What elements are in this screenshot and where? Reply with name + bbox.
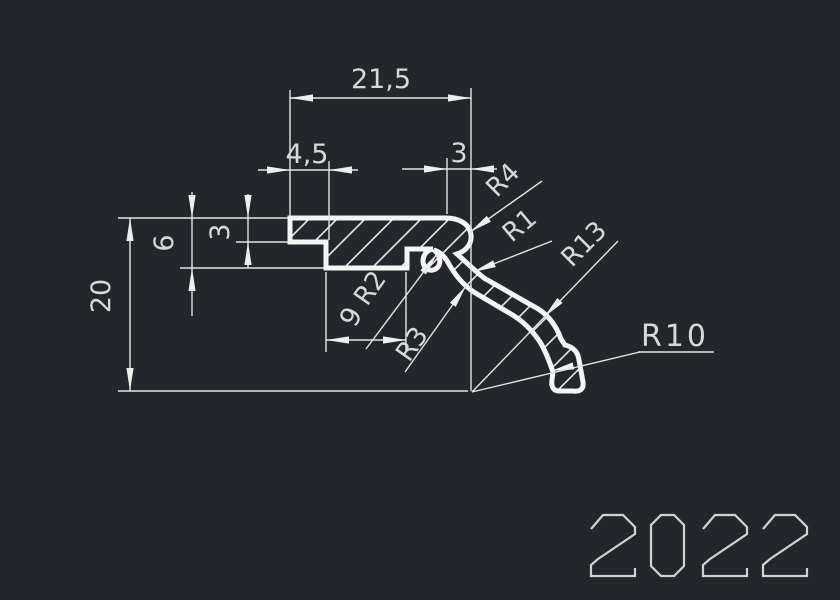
drawing-background bbox=[0, 0, 840, 600]
label-step-width[interactable]: 4,5 bbox=[286, 139, 329, 170]
cad-canvas[interactable]: 21,5 4,5 3 20 6 3 9 R2 R3 R4 R1 R13 R10 … bbox=[0, 0, 840, 600]
label-lip-height[interactable]: 3 bbox=[205, 223, 236, 240]
label-total-height[interactable]: 20 bbox=[86, 279, 117, 313]
label-radius-r10[interactable]: R10 bbox=[641, 319, 709, 354]
label-right-width[interactable]: 3 bbox=[450, 138, 467, 169]
label-web-height[interactable]: 6 bbox=[149, 234, 180, 251]
label-total-width[interactable]: 21,5 bbox=[351, 64, 411, 95]
